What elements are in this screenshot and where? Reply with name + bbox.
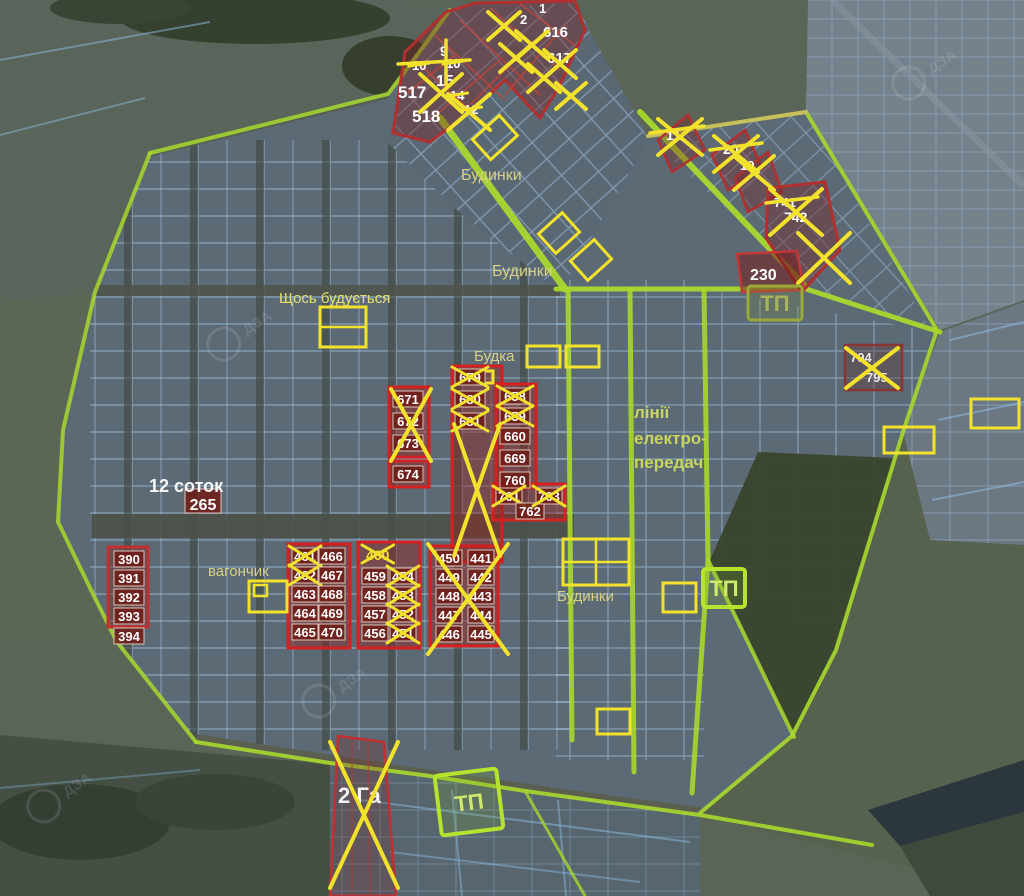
plot-number: 466 [321,549,343,564]
map-label: Будка [474,348,515,365]
plot-number: 470 [321,625,343,640]
plot-number: 448 [438,589,460,604]
plot-number: 457 [364,607,386,622]
tp-label: ТП [709,576,738,601]
plot-chip[interactable]: 393 [114,608,144,624]
plot-chip[interactable]: 466 [319,548,345,564]
plot-number-plain[interactable]: 1 [539,1,546,16]
plot-number: 393 [118,609,140,624]
plot-chip[interactable]: 454 [387,566,419,586]
map-label: електро- [634,429,707,448]
plot-chip[interactable]: 660 [500,428,530,444]
plot-number: 660 [504,429,526,444]
plot-number: 391 [118,571,140,586]
plot-number: 456 [364,626,386,641]
plot-number: 390 [118,552,140,567]
map-label: Будинки [557,588,614,605]
satellite-map[interactable]: 2656716726736746796806816586596606697607… [0,0,1024,896]
plot-number: 265 [190,497,217,514]
plot-number: 517 [398,83,426,102]
plot-number-plain[interactable]: 230 [750,267,777,284]
plot-chip[interactable]: 679 [452,367,488,387]
plot-chip[interactable]: 459 [362,568,388,584]
plot-number: 518 [412,107,440,126]
plot-number: 674 [397,467,419,482]
plot-number: 467 [321,568,343,583]
plot-chip[interactable]: 680 [452,389,488,409]
plot-chip[interactable]: 452 [387,604,419,624]
plot-chip[interactable]: 458 [362,587,388,603]
plot-number-plain[interactable]: 460 [362,545,394,563]
plot-chip[interactable]: 448 [436,588,462,604]
plot-chip[interactable]: 464 [292,605,318,621]
map-label: вагончик [208,563,269,580]
plot-chip[interactable]: 762 [516,503,544,519]
plot-chip[interactable]: 392 [114,589,144,605]
tp-label: ТП [453,788,485,816]
plot-chip[interactable]: 463 [292,586,318,602]
map-canvas[interactable]: 2656716726736746796806816586596606697607… [0,0,1024,896]
tp-substation[interactable]: ТП [748,286,802,320]
plot-number: 669 [504,451,526,466]
map-label: лінії [634,403,671,422]
map-label: 12 соток [149,476,224,496]
plot-chip[interactable]: 469 [319,605,345,621]
map-label: Будинки [461,167,522,184]
plot-number: 458 [364,588,386,603]
plot-chip[interactable]: 674 [393,466,423,482]
plot-chip[interactable]: 669 [500,450,530,466]
plot-chip[interactable]: 390 [114,551,144,567]
plot-number-plain[interactable]: 518 [412,107,440,126]
plot-chip[interactable]: 451 [387,623,419,643]
plot-number: 392 [118,590,140,605]
plot-number: 441 [470,551,492,566]
plot-number: 469 [321,606,343,621]
map-label: Щось будується [279,290,390,307]
plot-number: 230 [750,267,777,284]
plot-chip[interactable]: 462 [289,565,321,585]
plot-number: 1 [539,1,546,16]
plot-chip[interactable]: 394 [114,628,144,644]
tp-label: ТП [760,291,789,316]
map-label: передач [634,453,703,472]
plot-chip[interactable]: 467 [319,567,345,583]
plot-chip[interactable]: 456 [362,625,388,641]
plot-number: 468 [321,587,343,602]
plot-chip[interactable]: 763 [533,486,565,506]
tp-substation[interactable]: ТП [703,569,745,607]
plot-chip[interactable]: 465 [292,624,318,640]
plot-number: 2 [520,12,527,27]
plot-chip[interactable]: 468 [319,586,345,602]
plot-number: 394 [118,629,140,644]
plot-number: 459 [364,569,386,584]
plot-number: 464 [294,606,316,621]
plot-chip[interactable]: 441 [468,550,494,566]
plot-chip[interactable]: 658 [497,386,533,406]
plot-number-plain[interactable]: 517 [398,83,426,102]
plot-number: 465 [294,625,316,640]
tp-substation[interactable]: ТП [435,768,504,835]
plot-chip[interactable]: 391 [114,570,144,586]
plot-number: 463 [294,587,316,602]
plot-chip[interactable]: 453 [387,585,419,605]
plot-chip[interactable]: 659 [497,406,533,426]
map-label: Будинки [492,263,553,280]
plot-chip[interactable]: 457 [362,606,388,622]
plot-chip[interactable]: 461 [289,546,321,566]
plot-number: 762 [519,504,541,519]
plot-number-plain[interactable]: 2 [520,12,527,27]
plot-chip[interactable]: 470 [319,624,345,640]
